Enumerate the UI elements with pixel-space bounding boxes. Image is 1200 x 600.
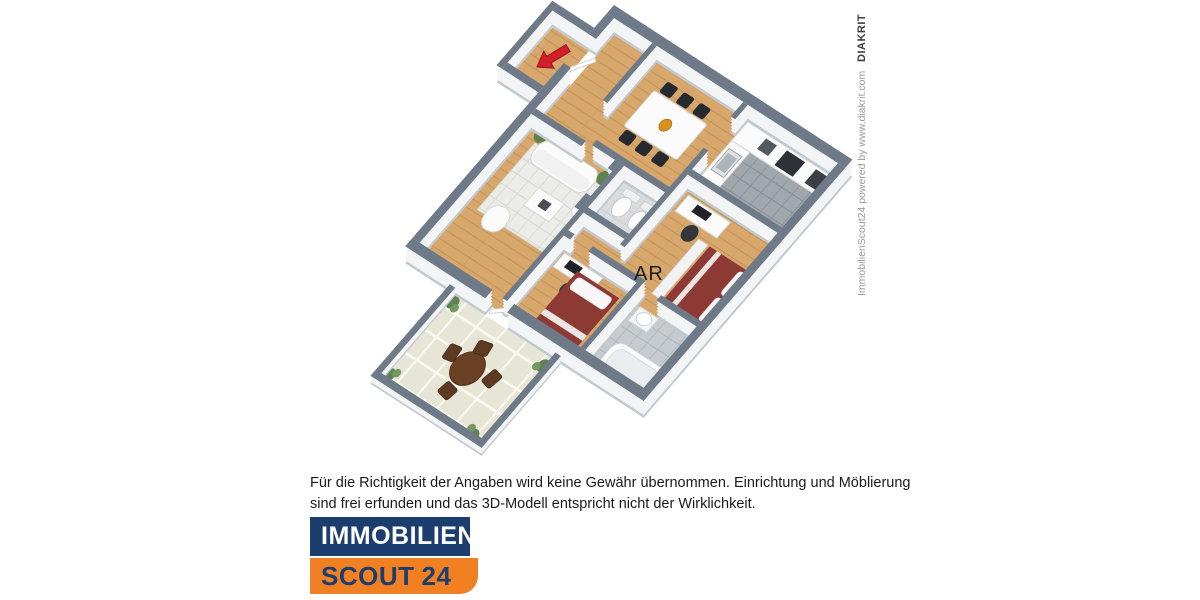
disclaimer-line2: sind frei erfunden und das 3D-Modell ent…: [310, 494, 910, 515]
storage-room-label: AR: [634, 263, 664, 285]
logo-24-text: 24: [422, 561, 452, 592]
disclaimer: Für die Richtigkeit der Angaben wird kei…: [310, 473, 910, 515]
logo-top-bar: IMMOBILIEN: [310, 517, 470, 556]
logo-scout-text: SCOUT: [321, 561, 415, 592]
watermark-credit: ImmobilienScout24 powered by www.diakrit…: [856, 71, 868, 296]
screenshot-canvas: AR ImmobilienScout24 powered by www.diak…: [0, 0, 1200, 600]
logo-bottom-bar: SCOUT 24: [310, 558, 478, 594]
logo-immobilien-text: IMMOBILIEN: [321, 522, 476, 551]
watermark: ImmobilienScout24 powered by www.diakrit…: [856, 12, 868, 296]
disclaimer-line1: Für die Richtigkeit der Angaben wird kei…: [310, 473, 910, 494]
watermark-brand: DIAKRIT: [856, 14, 868, 62]
immobilienscout24-logo: IMMOBILIEN SCOUT 24: [310, 517, 478, 594]
